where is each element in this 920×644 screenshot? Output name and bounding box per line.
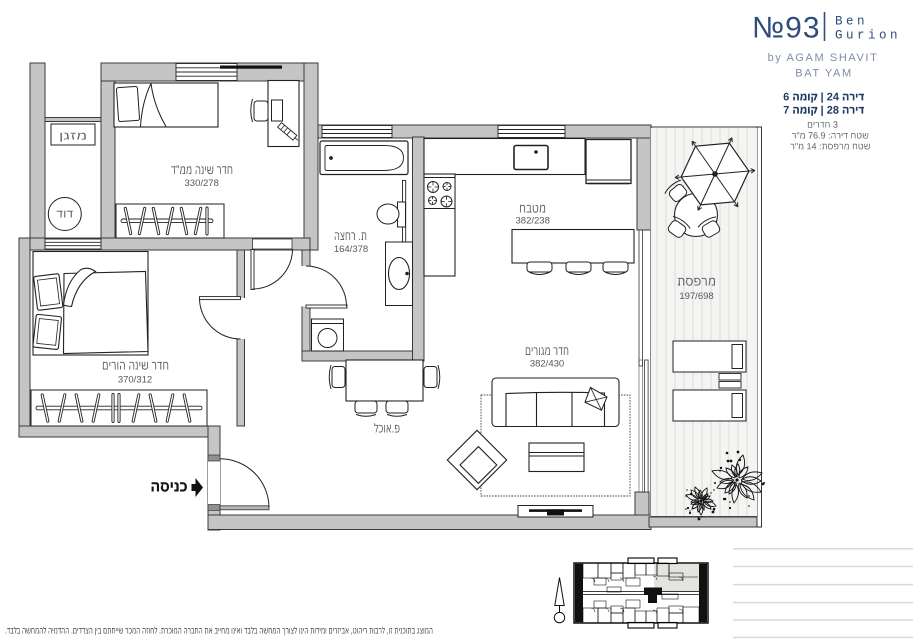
svg-text:№93: №93: [752, 12, 821, 45]
svg-text:Ben: Ben: [835, 15, 868, 29]
svg-text:by AGAM SHAVIT: by AGAM SHAVIT: [768, 52, 879, 64]
svg-text:Gurion: Gurion: [835, 29, 901, 43]
svg-text:164/378: 164/378: [334, 244, 368, 255]
svg-text:382/238: 382/238: [516, 216, 550, 227]
svg-text:370/312: 370/312: [118, 375, 152, 386]
svg-text:382/430: 382/430: [530, 359, 564, 370]
svg-text:330/278: 330/278: [185, 178, 219, 189]
svg-text:197/698: 197/698: [679, 291, 713, 302]
svg-text:BAT YAM: BAT YAM: [795, 68, 852, 80]
